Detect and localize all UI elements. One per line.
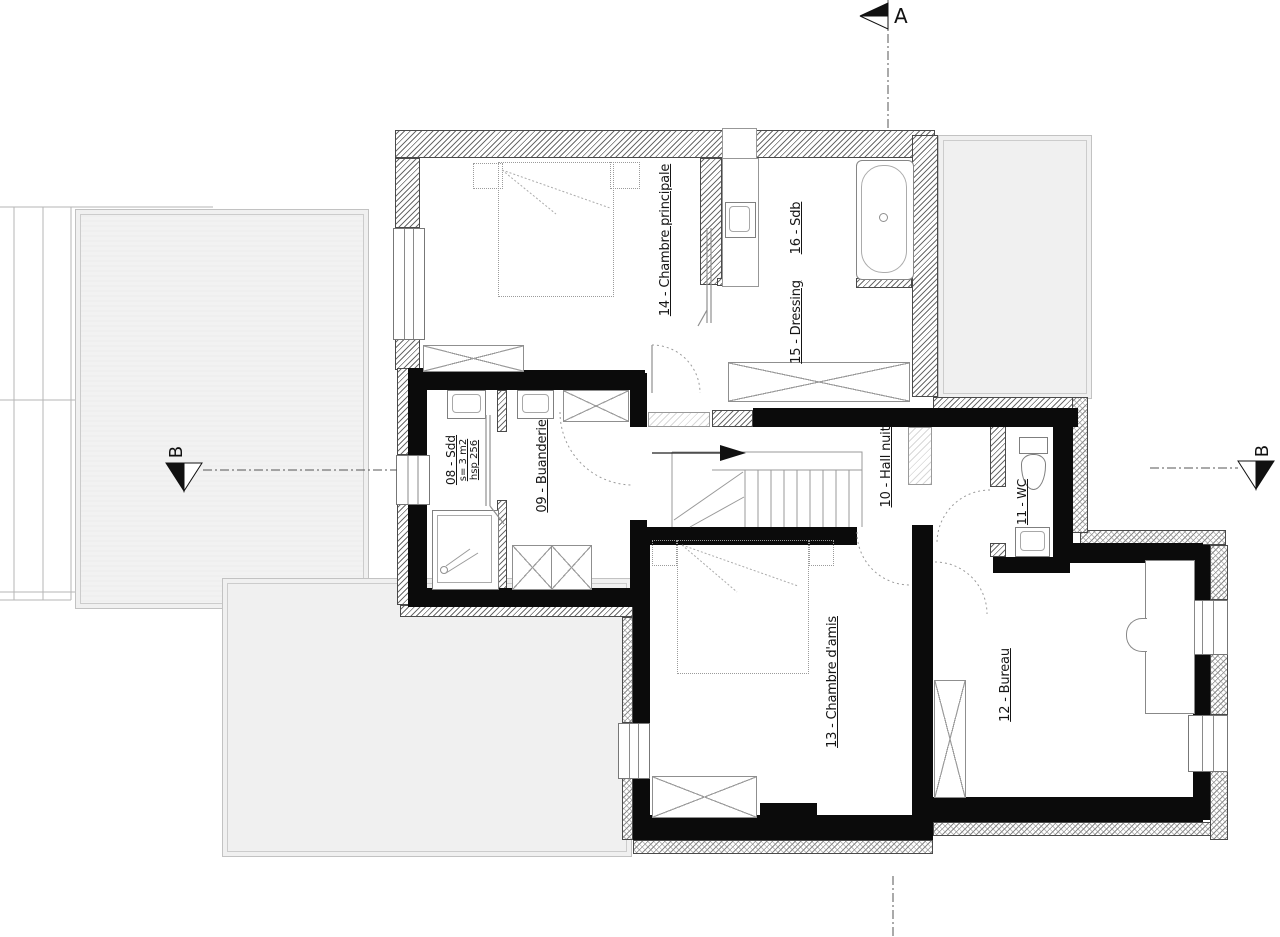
interior-wall bbox=[408, 588, 647, 607]
room-label-14: 14 - Chambre principale bbox=[658, 130, 674, 350]
desk bbox=[1145, 560, 1195, 714]
room-label-08-name: 08 - Sdd bbox=[444, 400, 458, 520]
wall-pier-light bbox=[908, 427, 932, 485]
interior-wall bbox=[993, 557, 1070, 573]
wardrobe bbox=[423, 345, 524, 372]
exterior-wall-east bbox=[1210, 770, 1228, 840]
room-label-09: 09 - Buanderie bbox=[535, 356, 551, 576]
exterior-wall-west bbox=[622, 777, 633, 840]
terrace-bottom-left bbox=[222, 578, 632, 857]
exterior-wall-east bbox=[1210, 653, 1228, 715]
exterior-wall-inner bbox=[923, 797, 1203, 822]
partition-wall bbox=[712, 410, 753, 427]
nightstand bbox=[473, 163, 503, 189]
bathtub-drain bbox=[879, 213, 888, 222]
section-marker-a-label: A bbox=[894, 4, 908, 28]
room-label-15: 15 - Dressing bbox=[789, 212, 805, 432]
window bbox=[618, 723, 650, 779]
room-label-08-area: s= 3 m2 bbox=[458, 400, 469, 520]
partition-wall bbox=[700, 158, 722, 285]
landing-edge bbox=[648, 412, 710, 427]
floor-plan: 14 - Chambre principale 16 - Sdb 15 - Dr… bbox=[0, 0, 1280, 937]
interior-wall bbox=[1053, 408, 1073, 558]
chair bbox=[1126, 618, 1147, 652]
partition-wall bbox=[497, 390, 507, 432]
section-marker-b-right-arrow bbox=[1238, 461, 1274, 489]
exterior-wall-east bbox=[1210, 545, 1228, 600]
exterior-wall-west bbox=[395, 158, 420, 228]
interior-wall bbox=[630, 373, 647, 427]
flat-roof-top-right bbox=[938, 135, 1092, 399]
partition-wall bbox=[990, 425, 1006, 487]
exterior-wall-west bbox=[622, 617, 633, 723]
exterior-wall-south bbox=[933, 822, 1228, 836]
nightstand bbox=[652, 540, 677, 566]
interior-wall bbox=[408, 368, 427, 455]
sink-basin bbox=[729, 206, 750, 232]
room-label-13: 13 - Chambre d'amis bbox=[825, 572, 841, 792]
exterior-wall-east bbox=[912, 135, 938, 397]
exterior-wall-inner bbox=[1193, 653, 1210, 715]
window bbox=[396, 455, 430, 505]
exterior-wall-inner bbox=[633, 815, 933, 840]
bed bbox=[498, 162, 614, 297]
section-marker-a-arrow bbox=[860, 3, 888, 29]
window bbox=[1188, 715, 1228, 772]
window bbox=[393, 228, 425, 340]
wardrobe bbox=[934, 680, 966, 798]
exterior-wall-inner bbox=[1193, 770, 1210, 820]
interior-wall bbox=[912, 525, 933, 835]
section-marker-b-left-label: B bbox=[167, 442, 187, 462]
nightstand bbox=[610, 162, 640, 189]
nightstand bbox=[809, 540, 834, 566]
room-label-08-ceiling: hsp 256 bbox=[469, 400, 480, 520]
shower-drain bbox=[440, 566, 448, 574]
bed bbox=[677, 540, 809, 674]
dryer bbox=[551, 545, 592, 590]
room-label-11: 11 - WC bbox=[1014, 392, 1030, 612]
wardrobe bbox=[652, 776, 757, 818]
section-marker-b-right-label: B bbox=[1253, 441, 1273, 461]
room-label-08: 08 - Sdd s= 3 m2 hsp 256 bbox=[444, 400, 480, 520]
exterior-wall-inner bbox=[633, 527, 650, 723]
wall-pier bbox=[760, 803, 817, 817]
chimney bbox=[722, 128, 757, 160]
cabinet bbox=[563, 390, 629, 422]
exterior-wall-south bbox=[633, 840, 933, 854]
stairs bbox=[672, 452, 862, 527]
partition-wall bbox=[990, 543, 1006, 557]
exterior-wall-west bbox=[395, 338, 420, 370]
room-label-12: 12 - Bureau bbox=[998, 575, 1014, 795]
exterior-wall-inner bbox=[1193, 545, 1210, 600]
stair-direction-arrow bbox=[652, 445, 746, 461]
room-label-10: 10 - Hall nuit bbox=[879, 357, 895, 577]
interior-wall bbox=[408, 370, 645, 390]
terrace-left bbox=[75, 209, 369, 609]
